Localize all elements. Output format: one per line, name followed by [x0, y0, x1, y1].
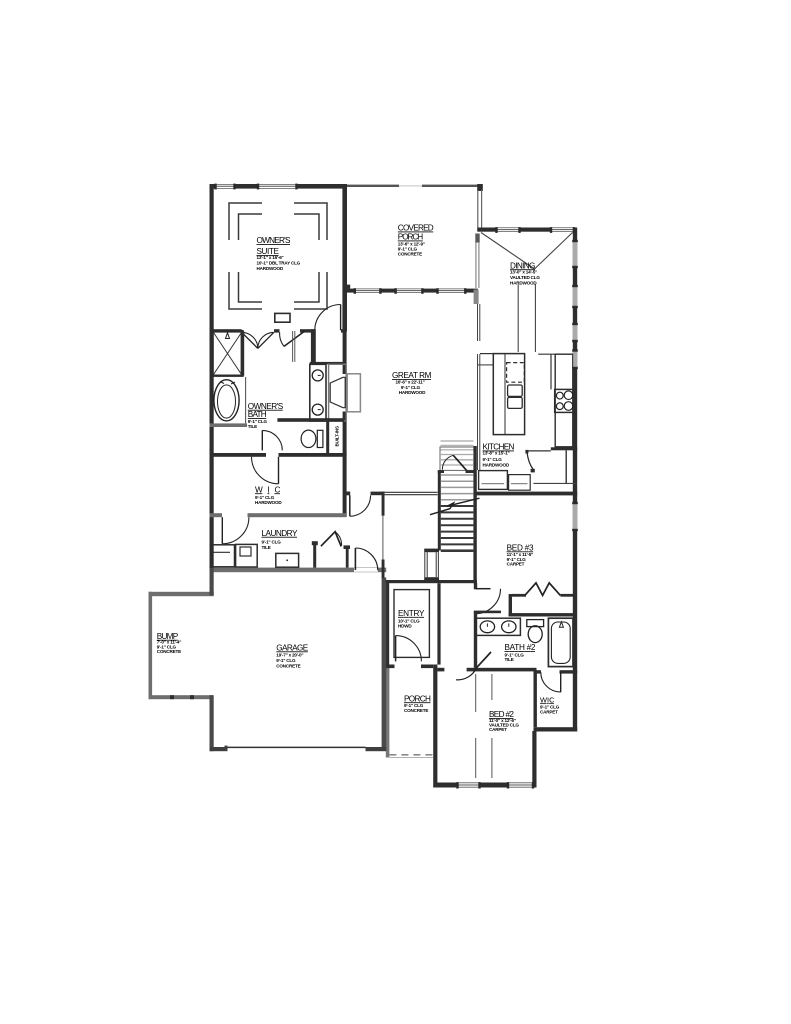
svg-text:TILE: TILE — [262, 545, 271, 550]
svg-text:HARDWOOD: HARDWOOD — [483, 462, 510, 467]
svg-text:CARPET: CARPET — [489, 727, 507, 732]
svg-text:CARPET: CARPET — [540, 710, 558, 715]
svg-text:PORCH: PORCH — [404, 694, 431, 703]
svg-text:GREAT RM: GREAT RM — [392, 371, 432, 380]
svg-text:CONCRETE: CONCRETE — [276, 664, 300, 669]
svg-text:19'-7" x 20'-0": 19'-7" x 20'-0" — [276, 652, 303, 657]
svg-text:TILE: TILE — [248, 424, 257, 429]
svg-text:PORCH: PORCH — [398, 233, 423, 242]
svg-text:VAULTED CLG: VAULTED CLG — [510, 275, 540, 280]
svg-text:HARDWOOD: HARDWOOD — [257, 266, 284, 271]
svg-text:9'-1" CLG: 9'-1" CLG — [276, 658, 296, 663]
svg-text:LAUNDRY: LAUNDRY — [262, 529, 298, 538]
svg-text:BATH #2: BATH #2 — [505, 643, 536, 652]
svg-text:CONCRETE: CONCRETE — [157, 649, 181, 654]
svg-text:CONCRETE: CONCRETE — [398, 252, 422, 257]
svg-text:OWNER'S: OWNER'S — [257, 236, 291, 245]
svg-text:GARAGE: GARAGE — [276, 643, 308, 652]
svg-text:HDWD: HDWD — [398, 623, 412, 628]
svg-text:BATH: BATH — [248, 410, 267, 419]
svg-text:9'-1" CLG: 9'-1" CLG — [262, 539, 282, 544]
svg-text:TILE: TILE — [505, 657, 514, 662]
svg-text:HARDWOOD: HARDWOOD — [399, 390, 426, 395]
svg-text:13'-1" x 16'-6": 13'-1" x 16'-6" — [257, 255, 284, 260]
svg-text:13'-0" x 14'-5": 13'-0" x 14'-5" — [510, 270, 537, 275]
svg-text:COVERED: COVERED — [398, 224, 434, 233]
svg-text:CARPET: CARPET — [507, 562, 525, 567]
svg-text:13'-8" x 15'-1": 13'-8" x 15'-1" — [483, 451, 510, 456]
svg-text:9'-1" CLG: 9'-1" CLG — [255, 495, 275, 500]
svg-text:9'-1" CLG: 9'-1" CLG — [483, 457, 503, 462]
svg-text:ENTRY: ENTRY — [398, 609, 425, 618]
svg-text:HARDWOOD: HARDWOOD — [510, 280, 537, 285]
svg-text:CONCRETE: CONCRETE — [404, 708, 428, 713]
svg-text:HARDWOOD: HARDWOOD — [255, 500, 282, 505]
svg-text:BUILT-INS: BUILT-INS — [335, 426, 340, 446]
svg-text:WIC: WIC — [255, 485, 280, 494]
svg-text:WIC: WIC — [540, 695, 555, 704]
